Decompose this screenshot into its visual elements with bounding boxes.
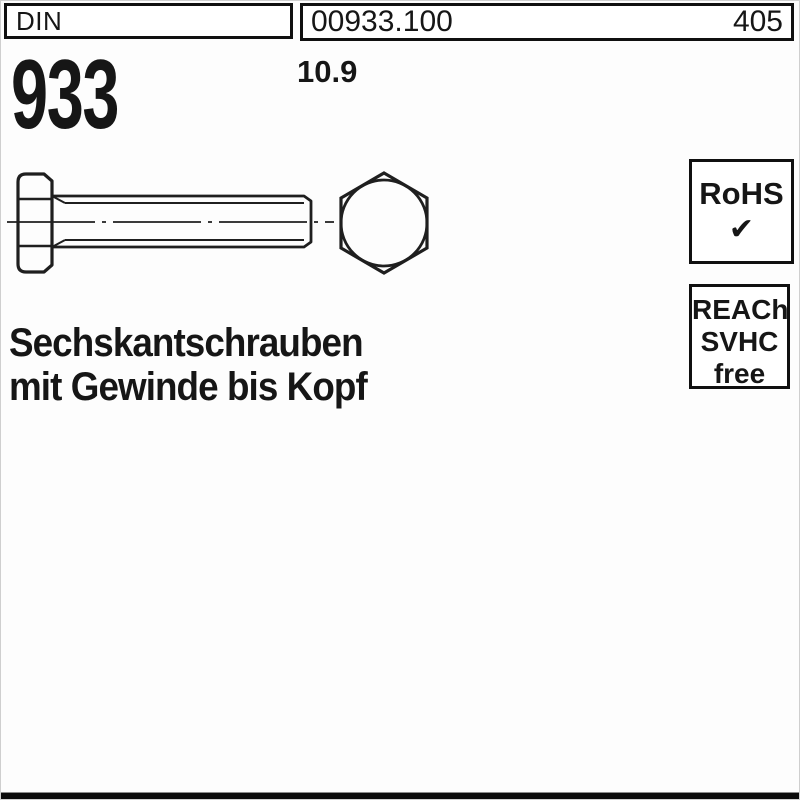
catalog-page: DIN 00933.100 405 933 10.9 [0,0,800,800]
rohs-badge: RoHS ✔ [689,159,794,264]
standard-number: 933 [11,45,118,143]
article-number: 00933.100 [311,5,453,39]
product-title-line1: Sechskantschrauben [9,321,367,365]
reach-badge: REACh SVHC free [689,284,790,389]
checkmark-icon: ✔ [692,213,791,247]
product-title: Sechskantschrauben mit Gewinde bis Kopf [9,321,367,409]
bolt-technical-drawing [1,151,481,311]
bottom-bar [1,792,799,799]
strength-class: 10.9 [297,54,357,90]
hex-bolt-side-view-icon [7,174,334,272]
din-label-box: DIN [4,3,293,39]
reach-label-line2: SVHC [692,326,787,358]
rohs-label: RoHS [692,176,791,212]
article-number-box: 00933.100 405 [300,3,794,41]
catalog-page-number: 405 [733,5,783,39]
product-title-line2: mit Gewinde bis Kopf [9,365,367,409]
reach-label-line1: REACh [692,294,787,326]
hex-bolt-front-view-icon [341,173,427,273]
reach-label-line3: free [692,358,787,390]
din-label: DIN [16,6,62,37]
